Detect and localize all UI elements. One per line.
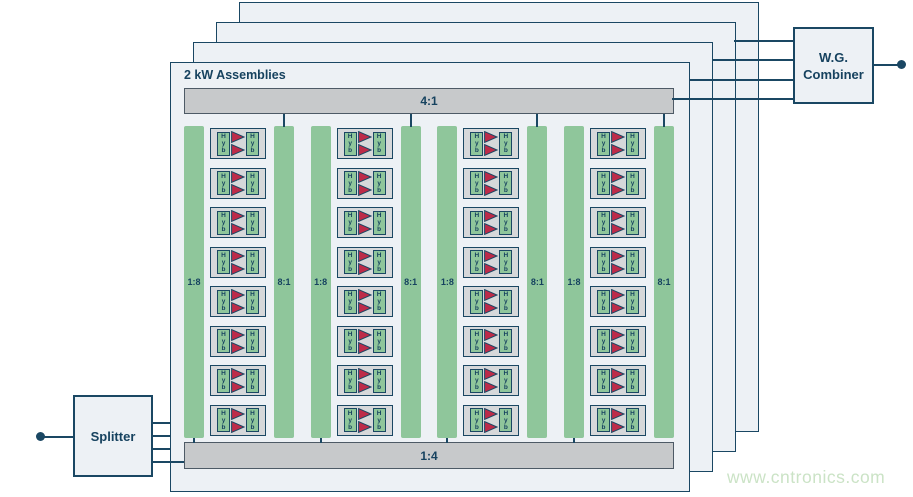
amplifier-icon (484, 342, 498, 354)
hybrid-letter: H (221, 331, 226, 338)
splitter-bar-1to8: 1:8 (437, 126, 457, 438)
amplifier-module: HybHyb (590, 247, 646, 278)
amplifier-icon (484, 368, 498, 380)
amplifier-icon (484, 421, 498, 433)
amplifier-icon (611, 329, 625, 341)
hybrid-letter: b (348, 187, 352, 194)
hybrid-coupler-in: Hyb (470, 408, 483, 432)
amplifier-module: HybHyb (337, 207, 393, 238)
hybrid-letter: y (475, 338, 479, 345)
hybrid-letter: H (503, 212, 508, 219)
hybrid-coupler-in: Hyb (597, 329, 610, 353)
hybrid-letter: b (222, 384, 226, 391)
amplifier-icon (611, 184, 625, 196)
hybrid-coupler-out: Hyb (499, 290, 512, 314)
combiner-label-line1: W.G. (819, 49, 848, 66)
hybrid-letter: y (504, 219, 508, 226)
hybrid-letter: H (348, 133, 353, 140)
hybrid-letter: H (377, 133, 382, 140)
hybrid-letter: b (602, 147, 606, 154)
amplifier-module: HybHyb (463, 247, 519, 278)
hybrid-letter: H (630, 212, 635, 219)
amplifier-icon (358, 250, 372, 262)
hybrid-letter: H (250, 252, 255, 259)
hybrid-letter: b (251, 384, 255, 391)
hybrid-letter: b (377, 424, 381, 431)
hybrid-coupler-out: Hyb (373, 171, 386, 195)
amplifier-icon (358, 184, 372, 196)
wire-assembly2-to-combiner (689, 79, 794, 81)
hybrid-letter: b (475, 187, 479, 194)
hybrid-letter: y (222, 298, 226, 305)
hybrid-letter: y (222, 219, 226, 226)
hybrid-letter: H (601, 370, 606, 377)
splitter-box: Splitter (73, 395, 153, 477)
hybrid-letter: H (503, 370, 508, 377)
splitter-label: Splitter (91, 428, 136, 445)
amplifier-icon (358, 421, 372, 433)
hybrid-coupler-in: Hyb (597, 250, 610, 274)
amplifier-module: HybHyb (337, 168, 393, 199)
amplifier-icon (231, 223, 245, 235)
hybrid-letter: H (474, 173, 479, 180)
hybrid-letter: b (475, 384, 479, 391)
hybrid-letter: y (251, 140, 255, 147)
hybrid-letter: y (377, 338, 381, 345)
hybrid-letter: b (631, 266, 635, 273)
wire-8to1-to-4to1 (663, 114, 665, 127)
hybrid-letter: y (251, 298, 255, 305)
amplifier-pair (358, 210, 372, 235)
hybrid-letter: y (504, 259, 508, 266)
hybrid-letter: H (630, 331, 635, 338)
splitter-bar-1to8: 1:8 (184, 126, 204, 438)
amplifier-icon (484, 210, 498, 222)
amplifier-pair (231, 368, 245, 393)
hybrid-letter: y (348, 219, 352, 226)
amplifier-icon (231, 408, 245, 420)
hybrid-coupler-in: Hyb (344, 171, 357, 195)
amplifier-array-diagram: 2 kW Assemblies 4:1 1:8HybHybHybHybHybHy… (0, 0, 913, 497)
hybrid-letter: b (348, 147, 352, 154)
amplifier-icon (484, 289, 498, 301)
amplifier-icon (611, 144, 625, 156)
amplifier-module: HybHyb (463, 168, 519, 199)
amplifier-pair (231, 250, 245, 275)
hybrid-letter: H (630, 410, 635, 417)
hybrid-coupler-out: Hyb (246, 250, 259, 274)
hybrid-letter: y (631, 298, 635, 305)
hybrid-letter: b (475, 147, 479, 154)
hybrid-letter: H (250, 291, 255, 298)
hybrid-letter: H (221, 410, 226, 417)
hybrid-letter: y (377, 219, 381, 226)
hybrid-letter: H (377, 212, 382, 219)
hybrid-letter: b (602, 226, 606, 233)
amplifier-pair (484, 250, 498, 275)
hybrid-letter: y (348, 259, 352, 266)
hybrid-letter: b (222, 266, 226, 273)
hybrid-coupler-out: Hyb (246, 132, 259, 156)
amplifier-icon (611, 210, 625, 222)
wire-assembly1-to-combiner (672, 98, 794, 100)
wire-1to4-to-1to8 (573, 438, 575, 443)
amplifier-module: HybHyb (590, 286, 646, 317)
hybrid-letter: b (631, 424, 635, 431)
amplifier-pair (358, 289, 372, 314)
splitter-bar-1to8-label: 1:8 (314, 277, 327, 287)
hybrid-letter: H (250, 331, 255, 338)
hybrid-letter: b (602, 266, 606, 273)
amplifier-icon (484, 223, 498, 235)
hybrid-letter: b (602, 424, 606, 431)
amplifier-column-4: 1:8HybHybHybHybHybHybHybHybHybHybHybHybH… (564, 126, 674, 438)
hybrid-letter: y (377, 377, 381, 384)
amplifier-icon (611, 342, 625, 354)
amplifier-icon (611, 171, 625, 183)
hybrid-coupler-out: Hyb (373, 369, 386, 393)
hybrid-coupler-in: Hyb (217, 290, 230, 314)
hybrid-letter: b (251, 345, 255, 352)
hybrid-letter: y (602, 377, 606, 384)
amplifier-pair (611, 250, 625, 275)
wire-splitter-to-assembly3 (153, 435, 171, 437)
amplifier-module: HybHyb (590, 128, 646, 159)
wire-1to4-to-1to8 (193, 438, 195, 443)
hybrid-letter: H (474, 212, 479, 219)
amplifier-pair (484, 408, 498, 433)
hybrid-letter: b (251, 266, 255, 273)
hybrid-coupler-out: Hyb (246, 211, 259, 235)
hybrid-letter: H (503, 173, 508, 180)
hybrid-letter: y (475, 377, 479, 384)
amplifier-icon (611, 289, 625, 301)
amplifier-pair (484, 329, 498, 354)
hybrid-coupler-in: Hyb (597, 369, 610, 393)
hybrid-letter: H (503, 291, 508, 298)
amplifier-pair (231, 131, 245, 156)
hybrid-letter: y (504, 377, 508, 384)
hybrid-coupler-out: Hyb (626, 408, 639, 432)
hybrid-letter: H (250, 173, 255, 180)
hybrid-letter: b (631, 345, 635, 352)
amplifier-module: HybHyb (210, 128, 266, 159)
hybrid-letter: H (377, 370, 382, 377)
amplifier-icon (358, 368, 372, 380)
wire-combiner-output (873, 64, 900, 66)
assembly-panel-1: 2 kW Assemblies 4:1 1:8HybHybHybHybHybHy… (170, 62, 690, 492)
combiner-bar-8to1-label: 8:1 (277, 277, 290, 287)
module-stack: HybHybHybHybHybHybHybHybHybHybHybHybHybH… (337, 128, 393, 436)
combiner-bar-8to1: 8:1 (401, 126, 421, 438)
amplifier-pair (358, 250, 372, 275)
hybrid-coupler-in: Hyb (217, 369, 230, 393)
combiner-bar-8to1: 8:1 (274, 126, 294, 438)
wire-8to1-to-4to1 (410, 114, 412, 127)
hybrid-letter: b (377, 384, 381, 391)
hybrid-letter: H (630, 370, 635, 377)
hybrid-coupler-in: Hyb (344, 369, 357, 393)
amplifier-module: HybHyb (337, 286, 393, 317)
hybrid-letter: b (377, 266, 381, 273)
hybrid-letter: b (251, 305, 255, 312)
amplifier-icon (611, 250, 625, 262)
amplifier-icon (358, 210, 372, 222)
hybrid-letter: b (504, 345, 508, 352)
hybrid-letter: H (630, 252, 635, 259)
hybrid-letter: b (602, 187, 606, 194)
hybrid-letter: y (251, 180, 255, 187)
amplifier-module: HybHyb (463, 128, 519, 159)
amplifier-icon (358, 381, 372, 393)
hybrid-coupler-in: Hyb (344, 211, 357, 235)
hybrid-letter: H (250, 212, 255, 219)
hybrid-letter: H (474, 291, 479, 298)
amplifier-icon (358, 342, 372, 354)
amplifier-icon (231, 171, 245, 183)
hybrid-letter: H (377, 410, 382, 417)
hybrid-letter: H (221, 291, 226, 298)
hybrid-letter: b (475, 305, 479, 312)
amplifier-module: HybHyb (463, 286, 519, 317)
amplifier-icon (358, 131, 372, 143)
amplifier-pair (611, 329, 625, 354)
amplifier-icon (611, 131, 625, 143)
panel-title: 2 kW Assemblies (184, 68, 286, 82)
splitter-bar-1to8-label: 1:8 (187, 277, 200, 287)
amplifier-icon (358, 302, 372, 314)
hybrid-letter: y (377, 259, 381, 266)
amplifier-icon (358, 289, 372, 301)
hybrid-letter: y (377, 140, 381, 147)
amplifier-pair (484, 131, 498, 156)
amplifier-pair (358, 329, 372, 354)
hybrid-letter: b (251, 424, 255, 431)
hybrid-letter: H (250, 370, 255, 377)
watermark-text: www.cntronics.com (727, 467, 885, 488)
amplifier-pair (231, 210, 245, 235)
hybrid-letter: y (504, 180, 508, 187)
amplifier-module: HybHyb (463, 405, 519, 436)
hybrid-letter: y (251, 417, 255, 424)
splitter-bar-1to8-label: 1:8 (441, 277, 454, 287)
hybrid-letter: b (377, 187, 381, 194)
hybrid-coupler-in: Hyb (344, 329, 357, 353)
hybrid-coupler-in: Hyb (597, 290, 610, 314)
hybrid-letter: y (348, 338, 352, 345)
hybrid-letter: b (377, 305, 381, 312)
hybrid-coupler-in: Hyb (597, 132, 610, 156)
amplifier-pair (358, 368, 372, 393)
hybrid-coupler-in: Hyb (470, 290, 483, 314)
amplifier-icon (611, 408, 625, 420)
hybrid-coupler-out: Hyb (373, 329, 386, 353)
hybrid-letter: b (251, 187, 255, 194)
hybrid-coupler-in: Hyb (217, 171, 230, 195)
hybrid-letter: b (222, 226, 226, 233)
combiner-bar-8to1-label: 8:1 (531, 277, 544, 287)
hybrid-letter: y (348, 377, 352, 384)
hybrid-letter: y (475, 259, 479, 266)
hybrid-letter: H (503, 410, 508, 417)
hybrid-letter: b (222, 305, 226, 312)
hybrid-letter: b (377, 345, 381, 352)
hybrid-letter: b (631, 305, 635, 312)
hybrid-letter: H (221, 252, 226, 259)
hybrid-coupler-out: Hyb (626, 132, 639, 156)
wire-1to4-to-1to8 (320, 438, 322, 443)
hybrid-letter: H (250, 410, 255, 417)
amplifier-icon (484, 144, 498, 156)
hybrid-coupler-out: Hyb (373, 250, 386, 274)
hybrid-letter: b (602, 305, 606, 312)
amplifier-icon (358, 171, 372, 183)
hybrid-coupler-in: Hyb (217, 408, 230, 432)
hybrid-coupler-in: Hyb (470, 369, 483, 393)
hybrid-letter: y (631, 219, 635, 226)
hybrid-letter: b (222, 147, 226, 154)
hybrid-letter: y (377, 417, 381, 424)
amplifier-icon (231, 329, 245, 341)
hybrid-letter: y (602, 338, 606, 345)
amplifier-pair (484, 210, 498, 235)
amplifier-icon (231, 184, 245, 196)
hybrid-letter: y (631, 417, 635, 424)
amplifier-icon (231, 144, 245, 156)
amplifier-icon (231, 381, 245, 393)
hybrid-letter: b (348, 226, 352, 233)
combiner-bar-8to1: 8:1 (527, 126, 547, 438)
amplifier-module: HybHyb (210, 326, 266, 357)
amplifier-column-1: 1:8HybHybHybHybHybHybHybHybHybHybHybHybH… (184, 126, 294, 438)
hybrid-letter: H (474, 133, 479, 140)
splitter-bar-1to4: 1:4 (184, 442, 674, 469)
hybrid-letter: H (630, 173, 635, 180)
amplifier-pair (611, 131, 625, 156)
hybrid-letter: b (348, 345, 352, 352)
amplifier-icon (611, 263, 625, 275)
hybrid-letter: H (601, 252, 606, 259)
hybrid-letter: y (475, 219, 479, 226)
amplifier-module: HybHyb (590, 365, 646, 396)
amplifier-icon (484, 408, 498, 420)
hybrid-letter: H (221, 370, 226, 377)
hybrid-letter: b (631, 226, 635, 233)
amplifier-icon (611, 302, 625, 314)
module-stack: HybHybHybHybHybHybHybHybHybHybHybHybHybH… (210, 128, 266, 436)
hybrid-coupler-in: Hyb (344, 408, 357, 432)
hybrid-letter: H (377, 173, 382, 180)
amplifier-icon (611, 368, 625, 380)
hybrid-letter: H (503, 331, 508, 338)
hybrid-letter: H (377, 252, 382, 259)
amplifier-pair (231, 329, 245, 354)
hybrid-letter: b (222, 424, 226, 431)
hybrid-coupler-out: Hyb (373, 290, 386, 314)
wire-splitter-to-assembly2 (153, 448, 171, 450)
hybrid-letter: y (222, 377, 226, 384)
hybrid-coupler-in: Hyb (470, 250, 483, 274)
amplifier-icon (484, 302, 498, 314)
hybrid-letter: b (504, 187, 508, 194)
amplifier-icon (231, 368, 245, 380)
hybrid-coupler-out: Hyb (626, 369, 639, 393)
hybrid-letter: H (221, 173, 226, 180)
amplifier-icon (484, 250, 498, 262)
hybrid-letter: y (222, 338, 226, 345)
amplifier-icon (611, 381, 625, 393)
hybrid-coupler-out: Hyb (626, 329, 639, 353)
hybrid-coupler-out: Hyb (499, 171, 512, 195)
hybrid-letter: y (602, 219, 606, 226)
hybrid-coupler-out: Hyb (373, 132, 386, 156)
amplifier-icon (611, 421, 625, 433)
amplifier-pair (611, 408, 625, 433)
combiner-bar-8to1-label: 8:1 (657, 277, 670, 287)
amplifier-module: HybHyb (210, 286, 266, 317)
hybrid-letter: y (475, 140, 479, 147)
hybrid-letter: b (631, 384, 635, 391)
amplifier-icon (484, 184, 498, 196)
hybrid-letter: y (602, 180, 606, 187)
amplifier-pair (611, 289, 625, 314)
amplifier-pair (611, 210, 625, 235)
amplifier-icon (611, 223, 625, 235)
amplifier-icon (231, 263, 245, 275)
hybrid-coupler-out: Hyb (373, 211, 386, 235)
hybrid-letter: y (602, 298, 606, 305)
hybrid-letter: b (222, 345, 226, 352)
hybrid-letter: y (602, 259, 606, 266)
hybrid-letter: H (630, 133, 635, 140)
amplifier-icon (484, 263, 498, 275)
amplifier-module: HybHyb (337, 247, 393, 278)
hybrid-letter: b (602, 384, 606, 391)
hybrid-letter: H (250, 133, 255, 140)
hybrid-coupler-out: Hyb (246, 408, 259, 432)
wire-8to1-to-4to1 (536, 114, 538, 127)
hybrid-letter: b (475, 345, 479, 352)
wire-8to1-to-4to1 (283, 114, 285, 127)
wire-1to4-to-1to8 (446, 438, 448, 443)
amplifier-pair (231, 408, 245, 433)
hybrid-letter: y (348, 140, 352, 147)
amplifier-pair (358, 171, 372, 196)
hybrid-letter: H (221, 133, 226, 140)
hybrid-letter: y (377, 180, 381, 187)
hybrid-coupler-out: Hyb (626, 211, 639, 235)
hybrid-coupler-out: Hyb (246, 369, 259, 393)
hybrid-letter: y (504, 417, 508, 424)
amplifier-icon (358, 408, 372, 420)
hybrid-letter: b (504, 266, 508, 273)
hybrid-letter: y (504, 298, 508, 305)
amplifier-icon (358, 223, 372, 235)
amplifier-icon (231, 302, 245, 314)
amplifier-icon (484, 131, 498, 143)
hybrid-letter: H (601, 173, 606, 180)
hybrid-letter: b (602, 345, 606, 352)
hybrid-letter: y (631, 140, 635, 147)
hybrid-coupler-in: Hyb (470, 132, 483, 156)
hybrid-letter: H (601, 133, 606, 140)
amplifier-icon (231, 421, 245, 433)
amplifier-column-2: 1:8HybHybHybHybHybHybHybHybHybHybHybHybH… (311, 126, 421, 438)
amplifier-pair (484, 368, 498, 393)
amplifier-pair (231, 289, 245, 314)
hybrid-letter: y (251, 259, 255, 266)
combiner-bar-8to1: 8:1 (654, 126, 674, 438)
